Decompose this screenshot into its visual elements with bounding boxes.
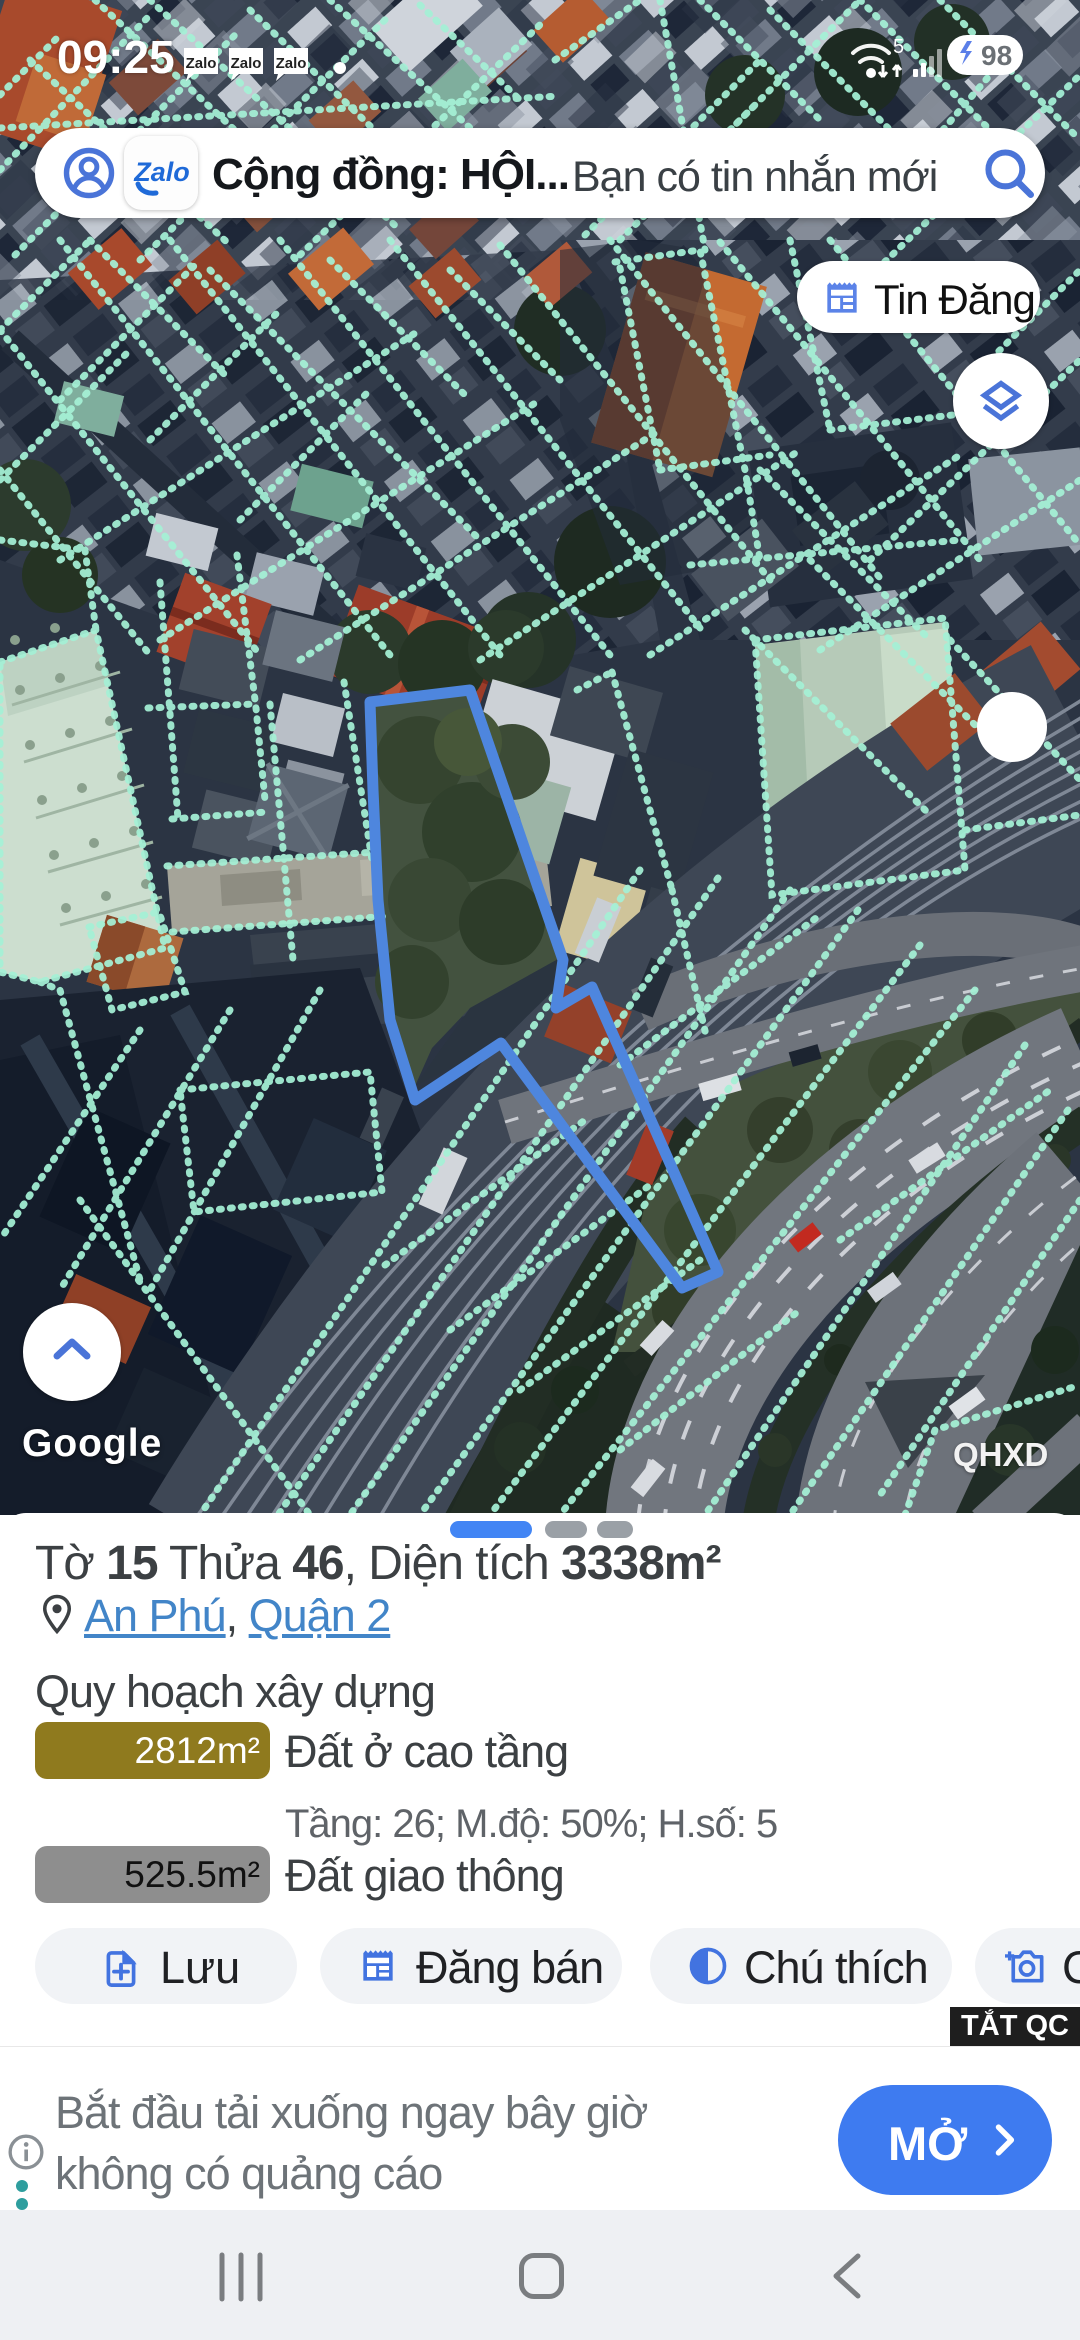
svg-text:98: 98 <box>981 40 1012 71</box>
svg-text:Zalo: Zalo <box>231 55 262 72</box>
svg-text:Zalo: Zalo <box>276 55 307 72</box>
svg-text:Zalo: Zalo <box>133 157 190 187</box>
svg-text:Zalo: Zalo <box>186 55 217 72</box>
svg-text:5: 5 <box>893 36 904 58</box>
